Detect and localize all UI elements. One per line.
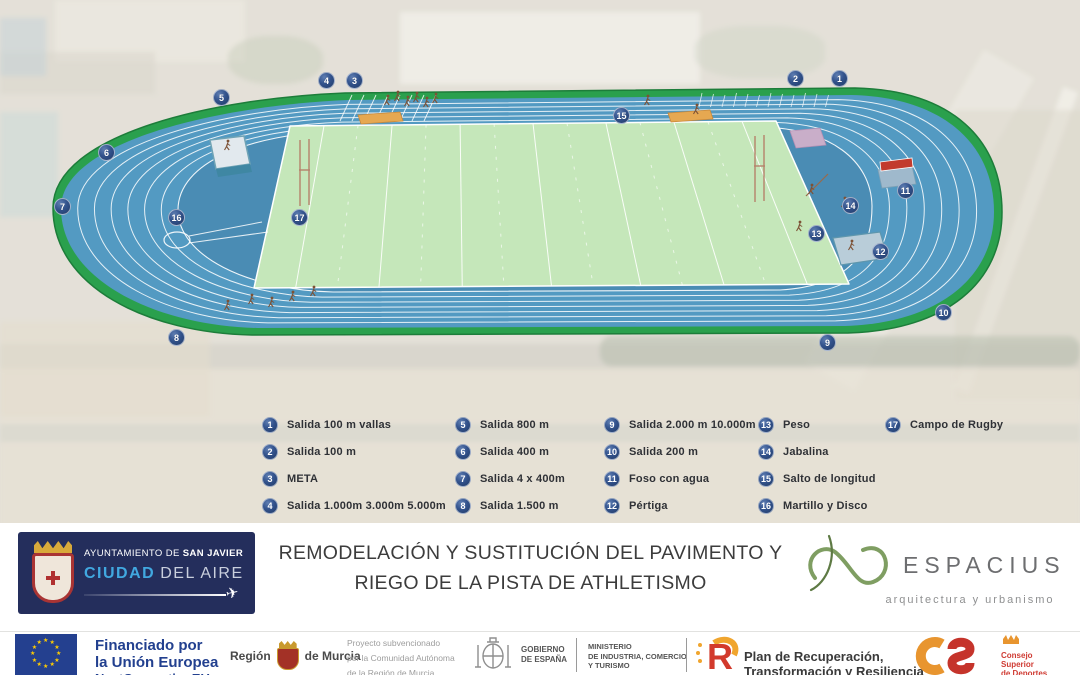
legend-item-1: 1Salida 100 m vallas <box>262 416 391 433</box>
track-marker-9: 9 <box>819 334 836 351</box>
ministerio-text: MINISTERIO DE INDUSTRIA, COMERCIO Y TURI… <box>588 642 687 671</box>
track-marker-3: 3 <box>346 72 363 89</box>
eu-star-icon: ★ <box>43 664 48 670</box>
espacius-swirl-icon <box>805 532 905 594</box>
eu-star-icon: ★ <box>54 658 59 664</box>
legend-label: Salida 1.000m 3.000m 5.000m <box>287 500 446 512</box>
murcia-crest-icon <box>276 641 300 671</box>
legend-number-badge: 8 <box>455 498 471 514</box>
grant-note: Proyecto subvencionado por la Comunidad … <box>347 636 455 675</box>
legend-item-9: 9Salida 2.000 m 10.000m <box>604 416 756 433</box>
track-marker-7: 7 <box>54 198 71 215</box>
track-marker-17: 17 <box>291 209 308 226</box>
footer-divider-line <box>0 631 1080 632</box>
legend-label: Salida 200 m <box>629 446 698 458</box>
legend-number-badge: 16 <box>758 498 774 514</box>
legend-item-5: 5Salida 800 m <box>455 416 549 433</box>
contrail-line <box>84 594 226 596</box>
eu-star-icon: ★ <box>37 640 42 646</box>
plan-recuperacion-text: Plan de Recuperación, Transformación y R… <box>744 650 924 675</box>
eu-star-icon: ★ <box>56 651 61 657</box>
eu-funding-text: Financiado por la Unión Europea <box>95 637 218 671</box>
title-line2: RIEGO DE LA PISTA DE ATHLETISMO <box>263 568 798 598</box>
next-generation-eu-text: NextGenerationEU <box>95 671 210 675</box>
vertical-divider <box>686 638 687 672</box>
legend-number-badge: 2 <box>262 444 278 460</box>
legend-label: META <box>287 473 318 485</box>
san-javier-line2: CIUDADDEL AIRE <box>84 565 244 583</box>
legend-item-6: 6Salida 400 m <box>455 443 549 460</box>
track-marker-6: 6 <box>98 144 115 161</box>
crown-icon <box>34 541 72 553</box>
legend-label: Salida 100 m <box>287 446 356 458</box>
athletics-track-render <box>0 0 1080 420</box>
espacius-name: ESPACIUS <box>903 552 1066 579</box>
legend-label: Salida 400 m <box>480 446 549 458</box>
airplane-icon: ✈ <box>224 583 240 603</box>
legend-label: Salto de longitud <box>783 473 876 485</box>
csd-logo-icon <box>908 636 1000 675</box>
legend-item-4: 4Salida 1.000m 3.000m 5.000m <box>262 497 446 514</box>
legend-item-12: 12Pértiga <box>604 497 668 514</box>
legend-number-badge: 3 <box>262 471 278 487</box>
track-marker-12: 12 <box>872 243 889 260</box>
legend-item-15: 15Salto de longitud <box>758 470 876 487</box>
vertical-divider <box>576 638 577 672</box>
track-marker-1: 1 <box>831 70 848 87</box>
eu-star-icon: ★ <box>54 645 59 651</box>
eu-star-icon: ★ <box>37 662 42 668</box>
san-javier-logo: AYUNTAMIENTO DE SAN JAVIER CIUDADDEL AIR… <box>18 532 255 614</box>
legend-item-11: 11Foso con agua <box>604 470 709 487</box>
track-marker-11: 11 <box>897 182 914 199</box>
svg-text:R: R <box>707 636 733 675</box>
consejo-superior-deportes-text: Consejo Superior de Deportes <box>1001 651 1047 675</box>
eu-star-icon: ★ <box>43 638 48 644</box>
track-marker-8: 8 <box>168 329 185 346</box>
legend-label: Salida 2.000 m 10.000m <box>629 419 756 431</box>
track-marker-4: 4 <box>318 72 335 89</box>
spain-coat-of-arms-icon <box>470 633 516 675</box>
legend-number-badge: 11 <box>604 471 620 487</box>
legend-number-badge: 5 <box>455 417 471 433</box>
san-javier-crest-icon <box>30 541 76 605</box>
san-javier-line1: AYUNTAMIENTO DE SAN JAVIER <box>84 548 243 559</box>
legend-label: Salida 1.500 m <box>480 500 559 512</box>
espacius-tagline: arquitectura y urbanismo <box>860 594 1080 606</box>
project-title: REMODELACIÓN Y SUSTITUCIÓN DEL PAVIMENTO… <box>263 538 798 598</box>
legend-number-badge: 10 <box>604 444 620 460</box>
legend-label: Campo de Rugby <box>910 419 1003 431</box>
espacius-logo: ESPACIUS arquitectura y urbanismo <box>800 528 1070 618</box>
legend-item-17: 17Campo de Rugby <box>885 416 1003 433</box>
legend-number-badge: 9 <box>604 417 620 433</box>
csd-crown-icon <box>1002 634 1020 645</box>
legend-item-8: 8Salida 1.500 m <box>455 497 559 514</box>
track-marker-2: 2 <box>787 70 804 87</box>
legend-item-3: 3META <box>262 470 318 487</box>
legend-label: Foso con agua <box>629 473 709 485</box>
legend-number-badge: 6 <box>455 444 471 460</box>
legend-label: Peso <box>783 419 810 431</box>
region-de-murcia-logo: Región de Murcia <box>230 641 361 671</box>
presentation-slide: 1234567891011121314151617 1Salida 100 m … <box>0 0 1080 675</box>
eu-flag-icon: ★★★★★★★★★★★★ <box>15 634 77 675</box>
plan-recuperacion-logo-icon: R <box>694 633 744 675</box>
legend-label: Martillo y Disco <box>783 500 868 512</box>
legend-number-badge: 15 <box>758 471 774 487</box>
gobierno-espana-text: GOBIERNO DE ESPAÑA <box>521 645 567 665</box>
shield-icon <box>32 553 74 603</box>
legend-label: Salida 4 x 400m <box>480 473 565 485</box>
legend-item-16: 16Martillo y Disco <box>758 497 868 514</box>
legend-item-10: 10Salida 200 m <box>604 443 698 460</box>
legend-label: Jabalina <box>783 446 829 458</box>
legend-label: Salida 100 m vallas <box>287 419 391 431</box>
legend-item-7: 7Salida 4 x 400m <box>455 470 565 487</box>
eu-star-icon: ★ <box>32 658 37 664</box>
eu-star-icon: ★ <box>30 651 35 657</box>
track-marker-13: 13 <box>808 225 825 242</box>
track-marker-15: 15 <box>613 107 630 124</box>
legend-item-13: 13Peso <box>758 416 810 433</box>
legend-number-badge: 13 <box>758 417 774 433</box>
legend-item-2: 2Salida 100 m <box>262 443 356 460</box>
legend-number-badge: 12 <box>604 498 620 514</box>
track-marker-16: 16 <box>168 209 185 226</box>
track-marker-14: 14 <box>842 197 859 214</box>
eu-star-icon: ★ <box>50 662 55 668</box>
title-line1: REMODELACIÓN Y SUSTITUCIÓN DEL PAVIMENTO… <box>263 538 798 568</box>
legend-number-badge: 4 <box>262 498 278 514</box>
track-marker-10: 10 <box>935 304 952 321</box>
legend-label: Salida 800 m <box>480 419 549 431</box>
legend-label: Pértiga <box>629 500 668 512</box>
legend-item-14: 14Jabalina <box>758 443 829 460</box>
legend-number-badge: 7 <box>455 471 471 487</box>
legend-number-badge: 1 <box>262 417 278 433</box>
track-marker-5: 5 <box>213 89 230 106</box>
legend-number-badge: 14 <box>758 444 774 460</box>
legend-number-badge: 17 <box>885 417 901 433</box>
